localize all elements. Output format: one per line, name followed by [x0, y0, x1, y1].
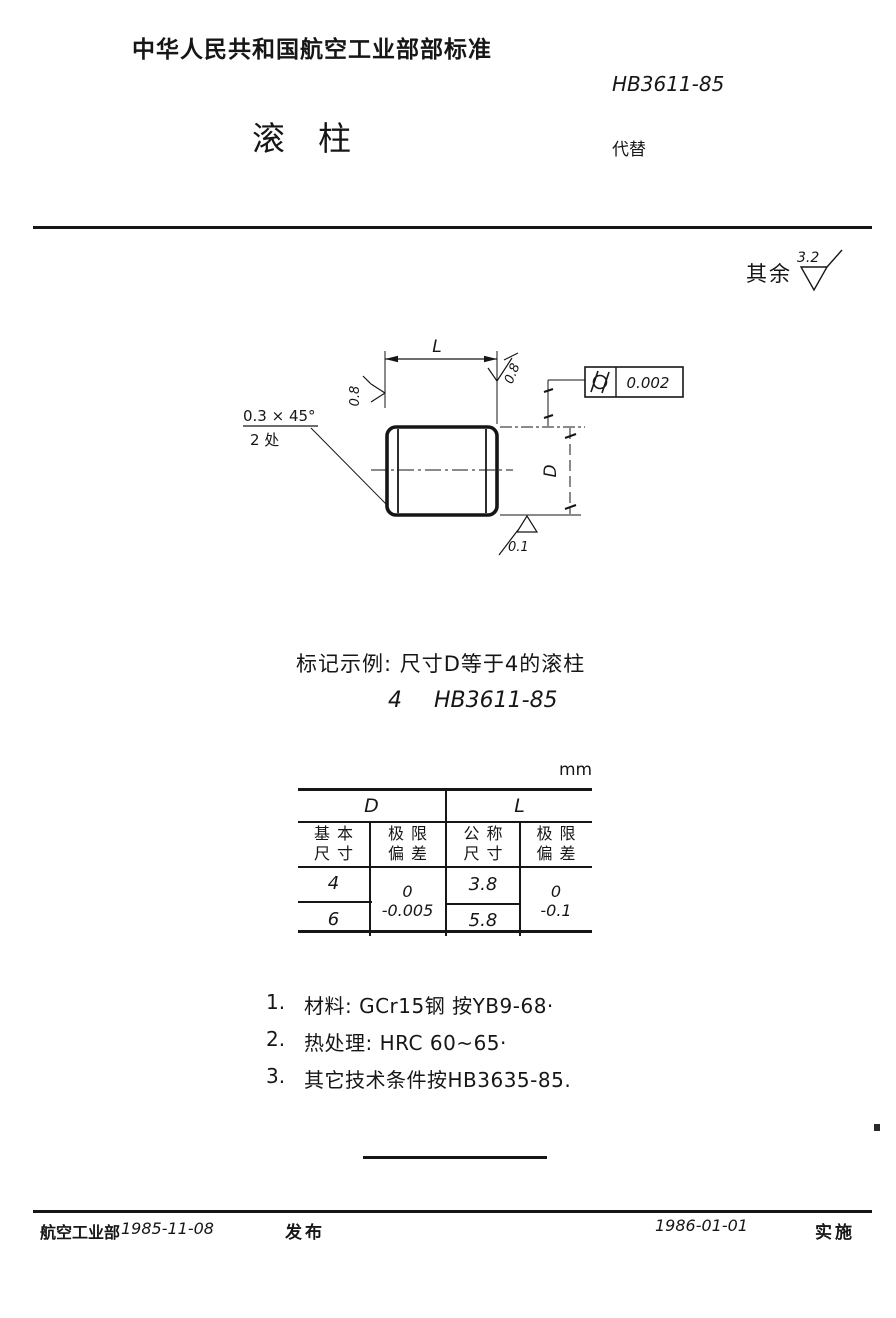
table-cell-l-nominal-1: 3.8 — [447, 866, 519, 903]
table-header-basic-size: 基本尺寸 — [298, 821, 369, 866]
table-cell-l-nominal-2: 5.8 — [447, 905, 519, 936]
tolerance-value: 0.002 — [627, 374, 670, 392]
roughness-value-left: 0.8 — [348, 386, 363, 407]
note-text: 热处理: HRC 60~65· — [304, 1027, 507, 1056]
footer-divider — [33, 1210, 872, 1213]
end-of-document-rule — [363, 1156, 547, 1159]
marking-example-size: 4 — [388, 688, 402, 713]
footer-organization: 航空工业部 — [40, 1219, 120, 1243]
standard-number: HB3611-85 — [612, 72, 724, 96]
table-cell-l-tolerance: 0-0.1 — [520, 866, 592, 936]
header-divider — [33, 226, 872, 229]
table-group-l: L — [447, 791, 592, 821]
table-header-nominal-size: 公称尺寸 — [447, 821, 519, 866]
note-text: 材料: GCr15钢 按YB9-68· — [304, 990, 554, 1019]
footer-implement-label: 实施 — [815, 1218, 855, 1243]
document-title-char: 滚 — [252, 112, 285, 160]
footer-implement-date: 1986-01-01 — [655, 1216, 748, 1235]
marking-example-line2: 4 HB3611-85 — [388, 688, 558, 713]
table-header-limit-dev-l: 极限偏差 — [520, 821, 592, 866]
replaces-label: 代替 — [612, 135, 646, 160]
table-unit-label: mm — [559, 760, 592, 780]
roller-body-outline — [387, 427, 497, 515]
marking-example-designation: HB3611-85 — [434, 688, 558, 713]
roughness-value-bottom: 0.1 — [508, 540, 529, 555]
roughness-value-right: 0.8 — [502, 361, 524, 386]
note-number: 1. — [266, 990, 285, 1014]
chamfer-callout: 0.3 × 45° — [243, 407, 316, 425]
footer-release-label: 发布 — [285, 1218, 325, 1243]
document-title: 滚 柱 — [252, 112, 351, 160]
technical-drawing: L D 0.002 0.3 × 45° 2 处 0.8 0.8 0.1 — [230, 330, 700, 570]
general-roughness-note: 其余 3.2 — [746, 248, 848, 298]
general-roughness-label: 其余 — [746, 258, 792, 288]
length-dim-label: L — [432, 337, 441, 357]
standard-document-page: 中华人民共和国航空工业部部标准 HB3611-85 滚 柱 代替 其余 3.2 — [0, 0, 896, 1318]
note-number: 2. — [266, 1027, 285, 1051]
roughness-triangle-icon: 3.2 — [792, 248, 848, 298]
general-roughness-value: 3.2 — [797, 250, 819, 266]
footer-release-date: 1985-11-08 — [121, 1219, 214, 1238]
note-text: 其它技术条件按HB3635-85. — [304, 1064, 571, 1093]
table-cell-d-basic-2: 6 — [298, 903, 369, 936]
table-cell-d-basic-1: 4 — [298, 866, 369, 901]
table-cell-d-tolerance: 0-0.005 — [370, 866, 445, 936]
marking-example-line1: 标记示例: 尺寸D等于4的滚柱 — [296, 648, 585, 678]
scan-artifact — [874, 1124, 880, 1131]
chamfer-places: 2 处 — [250, 431, 279, 449]
table-header-limit-dev-d: 极限偏差 — [370, 821, 445, 866]
dimension-table: D L 基本尺寸 极限偏差 公称尺寸 极限偏差 4 6 0-0.005 3.8 … — [298, 788, 592, 933]
diameter-dim-label: D — [541, 464, 561, 477]
document-title-char: 柱 — [318, 112, 351, 160]
table-group-d: D — [298, 791, 445, 821]
roughness-symbol-left-icon — [363, 376, 385, 402]
note-number: 3. — [266, 1064, 285, 1088]
page-title: 中华人民共和国航空工业部部标准 — [132, 30, 492, 64]
